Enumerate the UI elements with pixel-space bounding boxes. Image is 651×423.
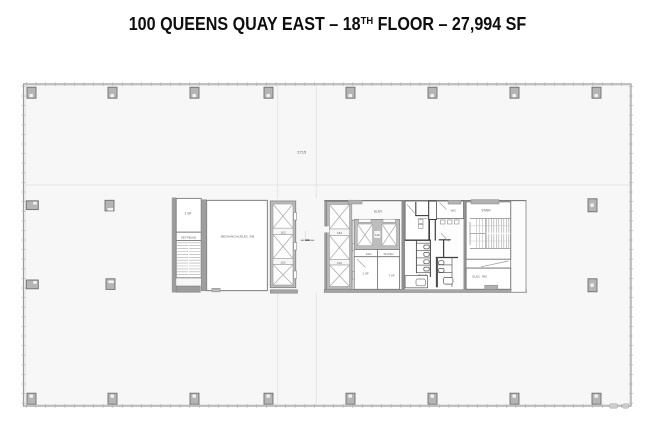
svg-text:162: 162 <box>337 231 342 235</box>
svg-text:2715: 2715 <box>297 150 307 155</box>
svg-text:7 SF: 7 SF <box>388 274 395 278</box>
svg-text:162: 162 <box>337 261 342 265</box>
svg-text:1 SF: 1 SF <box>184 212 191 216</box>
svg-text:ELEV.: ELEV. <box>374 209 383 213</box>
svg-text:VESTIBULE: VESTIBULE <box>181 235 197 239</box>
svg-text:1 SF: 1 SF <box>362 272 369 276</box>
svg-text:162: 162 <box>280 260 285 264</box>
svg-text:146: 146 <box>375 233 380 237</box>
svg-text:MECHANICAL/ELEC. RM.: MECHANICAL/ELEC. RM. <box>221 235 255 239</box>
svg-text:STAIR: STAIR <box>481 209 491 213</box>
svg-text:FLUSH: FLUSH <box>384 252 394 256</box>
svg-text:W/C: W/C <box>451 209 458 213</box>
svg-text:JAN.: JAN. <box>366 252 373 256</box>
svg-text:162: 162 <box>280 230 285 234</box>
svg-text:ELEC. RM.: ELEC. RM. <box>472 274 487 278</box>
